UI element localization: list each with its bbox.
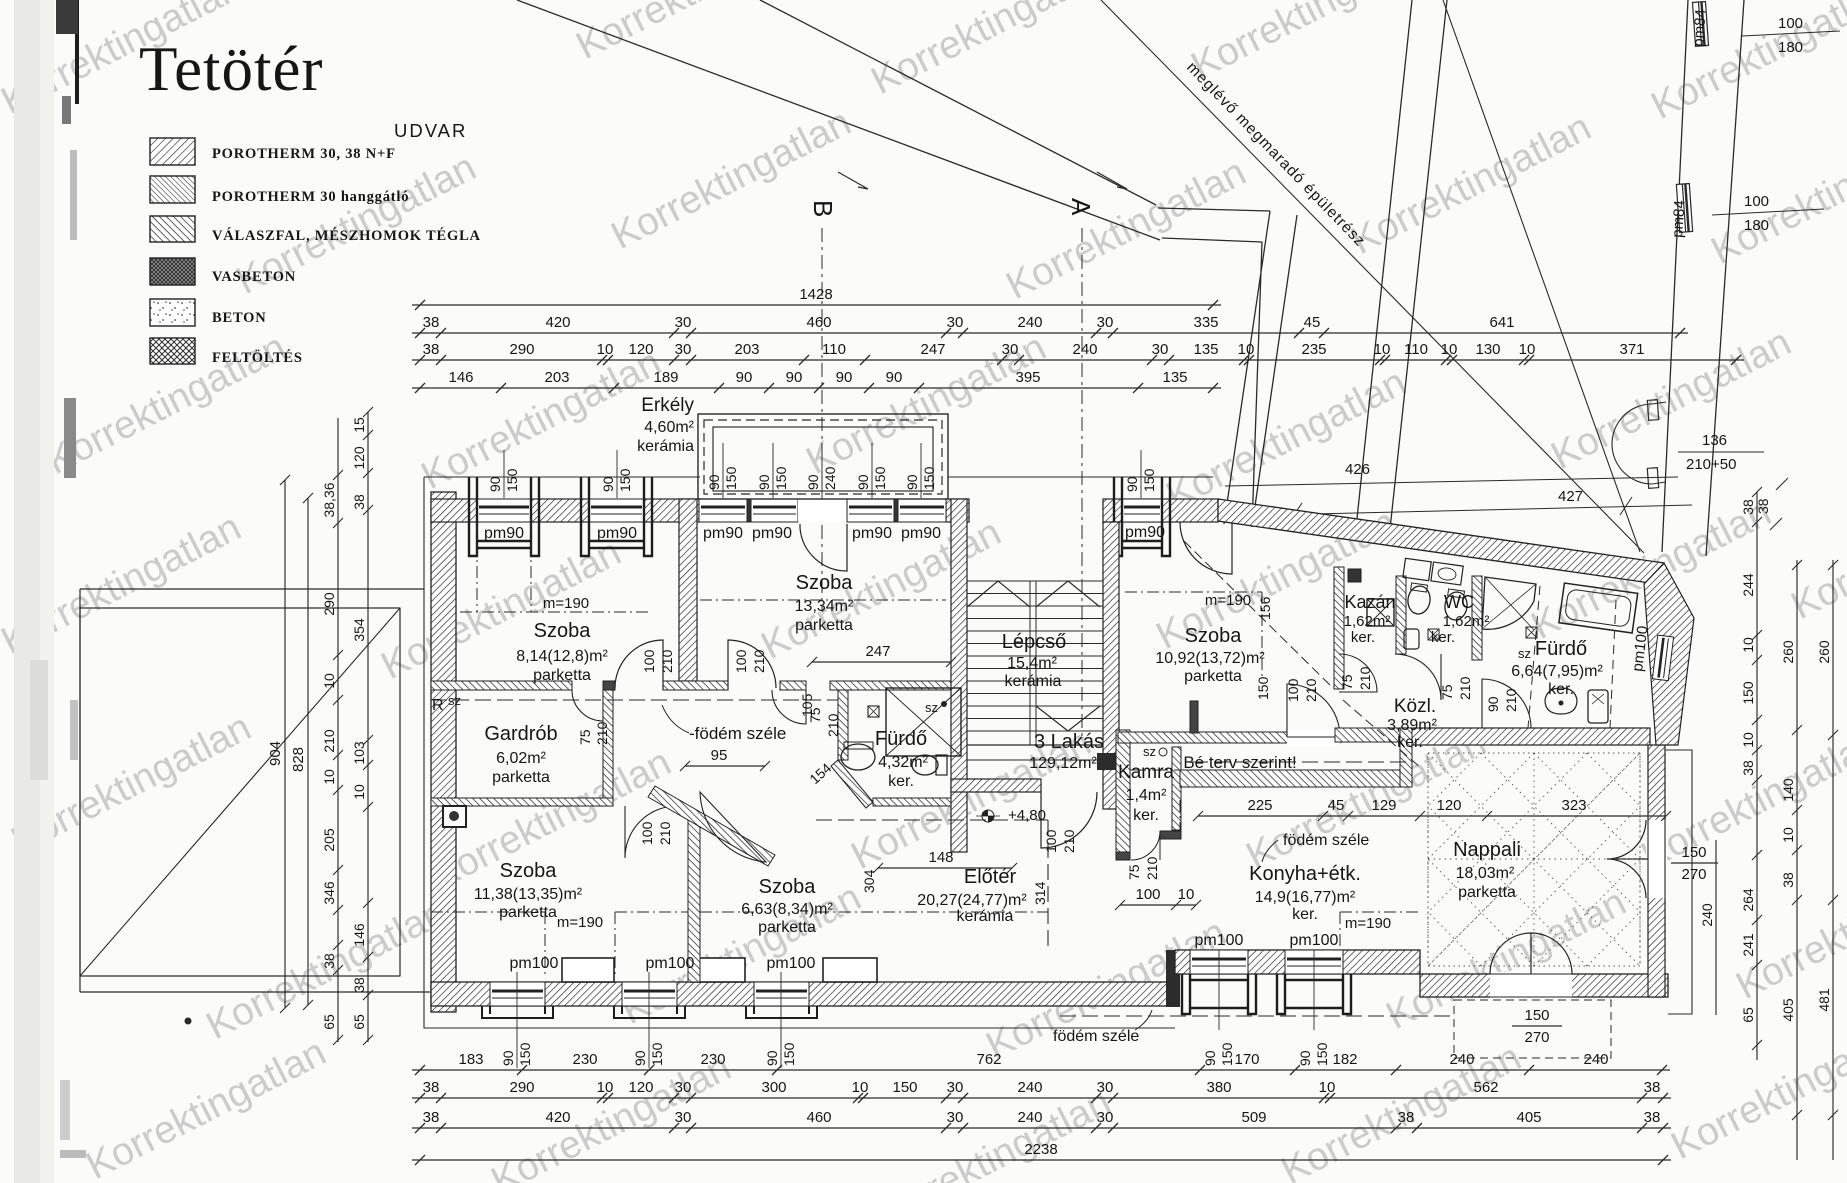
svg-text:kerámia: kerámia xyxy=(957,908,1014,925)
svg-text:pm90: pm90 xyxy=(901,525,941,542)
svg-text:6,63(8,34)m²: 6,63(8,34)m² xyxy=(741,901,833,918)
svg-text:210: 210 xyxy=(659,649,675,673)
svg-text:ker.: ker. xyxy=(1133,807,1159,824)
svg-text:pm90: pm90 xyxy=(597,525,637,542)
svg-text:pm84: pm84 xyxy=(1669,200,1689,239)
svg-text:1,62m²: 1,62m² xyxy=(1443,613,1490,630)
svg-text:pm90: pm90 xyxy=(852,525,892,542)
svg-text:150: 150 xyxy=(872,466,888,490)
svg-text:240: 240 xyxy=(1072,341,1097,358)
svg-text:244: 244 xyxy=(1740,573,1756,597)
svg-text:241: 241 xyxy=(1740,933,1756,957)
svg-text:146: 146 xyxy=(448,369,473,386)
svg-text:135: 135 xyxy=(1193,341,1218,358)
svg-text:38: 38 xyxy=(351,977,367,993)
svg-text:POROTHERM 30 hanggátló: POROTHERM 30 hanggátló xyxy=(212,189,409,205)
svg-text:1428: 1428 xyxy=(799,286,832,303)
svg-text:120: 120 xyxy=(628,1079,653,1096)
svg-text:182: 182 xyxy=(1332,1051,1357,1068)
svg-text:30: 30 xyxy=(1097,1079,1114,1096)
svg-text:FELTÖLTÉS: FELTÖLTÉS xyxy=(212,349,303,366)
svg-text:420: 420 xyxy=(545,314,570,331)
svg-text:100: 100 xyxy=(733,649,749,673)
svg-text:pm90: pm90 xyxy=(1125,524,1165,541)
svg-text:38: 38 xyxy=(423,314,440,331)
svg-text:90: 90 xyxy=(764,1050,780,1066)
svg-text:10: 10 xyxy=(1740,732,1756,748)
svg-text:150: 150 xyxy=(1219,1042,1235,1066)
svg-text:10: 10 xyxy=(597,1079,614,1096)
svg-text:205: 205 xyxy=(321,828,337,852)
svg-text:m=190: m=190 xyxy=(557,914,603,931)
svg-text:426: 426 xyxy=(1345,461,1370,478)
svg-text:VASBETON: VASBETON xyxy=(212,269,296,285)
svg-text:762: 762 xyxy=(976,1051,1001,1068)
svg-text:B: B xyxy=(808,200,838,217)
svg-text:15: 15 xyxy=(351,417,367,433)
svg-text:sz: sz xyxy=(925,700,938,715)
svg-text:30: 30 xyxy=(947,1079,964,1096)
svg-text:203: 203 xyxy=(734,341,759,358)
svg-text:90: 90 xyxy=(1485,696,1501,712)
svg-text:828: 828 xyxy=(290,747,307,772)
svg-text:90: 90 xyxy=(836,369,853,386)
svg-text:100: 100 xyxy=(641,649,657,673)
svg-text:150: 150 xyxy=(773,466,789,490)
svg-text:Erkély: Erkély xyxy=(641,395,694,416)
svg-text:6,64(7,95)m²: 6,64(7,95)m² xyxy=(1511,663,1603,680)
svg-text:13,34m²: 13,34m² xyxy=(795,598,854,615)
svg-text:136: 136 xyxy=(1702,432,1727,449)
svg-text:parketta: parketta xyxy=(1184,668,1242,685)
svg-text:38: 38 xyxy=(1644,1079,1661,1096)
svg-text:427: 427 xyxy=(1558,488,1583,505)
svg-text:30: 30 xyxy=(675,1109,692,1126)
svg-text:18,03m²: 18,03m² xyxy=(1456,865,1515,882)
svg-text:150: 150 xyxy=(1255,676,1271,700)
svg-text:210: 210 xyxy=(1061,829,1077,853)
svg-text:189: 189 xyxy=(653,369,678,386)
svg-text:30: 30 xyxy=(675,314,692,331)
svg-text:BETON: BETON xyxy=(212,310,267,326)
svg-text:203: 203 xyxy=(544,369,569,386)
svg-text:Szoba: Szoba xyxy=(534,620,592,642)
svg-text:210+50: 210+50 xyxy=(1686,456,1736,473)
svg-text:38: 38 xyxy=(1780,872,1796,888)
svg-text:Kamra: Kamra xyxy=(1118,762,1174,783)
svg-text:Gardrób: Gardrób xyxy=(484,723,557,745)
svg-text:335: 335 xyxy=(1193,314,1218,331)
svg-text:38: 38 xyxy=(1398,1109,1415,1126)
svg-text:Konyha+étk.: Konyha+étk. xyxy=(1249,863,1361,885)
svg-text:641: 641 xyxy=(1489,314,1514,331)
svg-text:10,92(13,72)m²: 10,92(13,72)m² xyxy=(1155,650,1265,667)
svg-text:38: 38 xyxy=(1740,499,1756,515)
svg-text:38: 38 xyxy=(321,953,337,969)
svg-text:130: 130 xyxy=(1475,341,1500,358)
svg-text:225: 225 xyxy=(1247,797,1272,814)
svg-text:kerámia: kerámia xyxy=(1005,673,1062,690)
svg-text:260: 260 xyxy=(1780,640,1796,664)
svg-text:38: 38 xyxy=(423,1079,440,1096)
svg-text:210: 210 xyxy=(1144,856,1160,880)
svg-text:65: 65 xyxy=(351,1014,367,1030)
svg-text:pm100: pm100 xyxy=(646,955,695,972)
svg-text:230: 230 xyxy=(700,1051,725,1068)
svg-text:pm100: pm100 xyxy=(767,955,816,972)
svg-text:90: 90 xyxy=(1297,1050,1313,1066)
svg-text:45: 45 xyxy=(1304,314,1321,331)
svg-text:m=190: m=190 xyxy=(1205,592,1251,609)
svg-text:Kazán: Kazán xyxy=(1344,592,1395,612)
svg-text:10: 10 xyxy=(1238,341,1255,358)
svg-text:38,36: 38,36 xyxy=(321,482,337,517)
svg-text:UDVAR: UDVAR xyxy=(394,120,467,141)
svg-text:210: 210 xyxy=(1357,666,1373,690)
svg-text:parketta: parketta xyxy=(758,919,816,936)
svg-text:A: A xyxy=(1066,198,1096,216)
svg-text:183: 183 xyxy=(458,1051,483,1068)
svg-text:sz: sz xyxy=(1518,646,1531,661)
svg-text:POROTHERM 30, 38 N+F: POROTHERM 30, 38 N+F xyxy=(212,146,396,162)
svg-text:30: 30 xyxy=(947,1109,964,1126)
svg-text:110: 110 xyxy=(822,341,846,358)
svg-text:1,62m²: 1,62m² xyxy=(1344,613,1391,630)
svg-text:+4,80: +4,80 xyxy=(1008,807,1046,824)
svg-text:304: 304 xyxy=(861,869,877,893)
svg-text:38: 38 xyxy=(1740,760,1756,776)
svg-text:100: 100 xyxy=(1135,886,1160,903)
svg-text:ker.: ker. xyxy=(1292,906,1318,923)
svg-text:Szoba: Szoba xyxy=(1185,625,1243,647)
svg-text:180: 180 xyxy=(1744,217,1769,234)
svg-text:235: 235 xyxy=(1301,341,1326,358)
svg-text:90: 90 xyxy=(855,474,871,490)
svg-text:150: 150 xyxy=(504,468,520,492)
svg-text:100: 100 xyxy=(1744,193,1769,210)
svg-text:6,02m²: 6,02m² xyxy=(496,750,546,767)
svg-text:ker.: ker. xyxy=(1548,681,1574,698)
svg-text:75: 75 xyxy=(1126,864,1142,880)
svg-text:Szoba: Szoba xyxy=(796,572,854,594)
svg-text:38: 38 xyxy=(423,341,440,358)
svg-text:90: 90 xyxy=(805,474,821,490)
svg-text:156: 156 xyxy=(1257,596,1273,620)
svg-text:10: 10 xyxy=(1519,341,1536,358)
svg-text:90: 90 xyxy=(1124,476,1140,492)
svg-text:3 Lakás: 3 Lakás xyxy=(1034,731,1104,753)
svg-text:240: 240 xyxy=(1583,1051,1608,1068)
svg-text:-födém széle: -födém széle xyxy=(689,724,786,743)
svg-text:ker.: ker. xyxy=(1431,629,1455,646)
svg-text:Nappali: Nappali xyxy=(1453,839,1521,861)
svg-text:8,14(12,8)m²: 8,14(12,8)m² xyxy=(516,648,608,665)
svg-text:460: 460 xyxy=(806,314,831,331)
svg-text:146: 146 xyxy=(351,923,367,947)
svg-text:509: 509 xyxy=(1241,1109,1266,1126)
svg-text:sz: sz xyxy=(1143,744,1156,759)
svg-text:170: 170 xyxy=(1234,1051,1259,1068)
svg-text:10: 10 xyxy=(1780,827,1796,843)
svg-text:135: 135 xyxy=(1162,369,1187,386)
svg-text:150: 150 xyxy=(517,1042,533,1066)
svg-text:65: 65 xyxy=(321,1014,337,1030)
svg-text:300: 300 xyxy=(761,1079,786,1096)
svg-text:30: 30 xyxy=(947,314,964,331)
svg-text:290: 290 xyxy=(321,592,337,616)
svg-text:Bé terv szerint!: Bé terv szerint! xyxy=(1183,753,1296,772)
svg-text:pm84: pm84 xyxy=(1690,9,1710,48)
svg-text:38: 38 xyxy=(423,1109,440,1126)
svg-text:420: 420 xyxy=(545,1109,570,1126)
svg-text:240: 240 xyxy=(1017,314,1042,331)
svg-text:150: 150 xyxy=(1681,844,1706,861)
svg-text:Fürdő: Fürdő xyxy=(1535,638,1587,660)
svg-text:150: 150 xyxy=(723,466,739,490)
svg-text:parketta: parketta xyxy=(492,769,550,786)
svg-text:90: 90 xyxy=(706,474,722,490)
svg-text:395: 395 xyxy=(1015,369,1040,386)
svg-text:parketta: parketta xyxy=(533,667,591,684)
svg-text:270: 270 xyxy=(1681,866,1706,883)
svg-text:371: 371 xyxy=(1619,341,1644,358)
svg-text:314: 314 xyxy=(1032,881,1048,905)
svg-text:240: 240 xyxy=(1699,903,1715,927)
svg-text:ker.: ker. xyxy=(1397,734,1423,751)
svg-text:120: 120 xyxy=(628,341,653,358)
svg-text:90: 90 xyxy=(736,369,753,386)
svg-text:95: 95 xyxy=(711,747,728,764)
svg-text:65: 65 xyxy=(1740,1007,1756,1023)
svg-text:240: 240 xyxy=(1017,1079,1042,1096)
svg-text:30: 30 xyxy=(1097,1109,1114,1126)
svg-text:75: 75 xyxy=(577,729,593,745)
svg-text:38: 38 xyxy=(1644,1109,1661,1126)
svg-text:30: 30 xyxy=(1097,314,1114,331)
svg-text:Fürdő: Fürdő xyxy=(875,728,927,750)
svg-text:1,4m²: 1,4m² xyxy=(1126,787,1168,804)
svg-text:100: 100 xyxy=(639,821,655,845)
svg-text:100: 100 xyxy=(1043,829,1059,853)
svg-text:90: 90 xyxy=(487,476,503,492)
svg-text:30: 30 xyxy=(1152,341,1169,358)
svg-text:10: 10 xyxy=(351,784,367,800)
svg-text:pm90: pm90 xyxy=(484,525,524,542)
svg-text:148: 148 xyxy=(928,849,953,866)
svg-text:120: 120 xyxy=(1436,797,1461,814)
svg-text:100: 100 xyxy=(1778,15,1803,32)
svg-text:129,12m²: 129,12m² xyxy=(1029,755,1097,772)
svg-text:75: 75 xyxy=(1339,674,1355,690)
svg-text:129: 129 xyxy=(1371,797,1396,814)
svg-text:15,4m²: 15,4m² xyxy=(1007,655,1057,672)
svg-text:90: 90 xyxy=(886,369,903,386)
svg-text:100: 100 xyxy=(1285,678,1301,702)
svg-text:30: 30 xyxy=(1002,341,1019,358)
svg-text:405: 405 xyxy=(1780,998,1796,1022)
svg-text:10: 10 xyxy=(1441,341,1458,358)
svg-text:150: 150 xyxy=(892,1079,917,1096)
svg-text:240: 240 xyxy=(1017,1109,1042,1126)
svg-text:30: 30 xyxy=(675,341,692,358)
svg-text:14,9(16,77)m²: 14,9(16,77)m² xyxy=(1255,889,1356,906)
svg-text:140: 140 xyxy=(1780,778,1796,802)
svg-text:Lépcső: Lépcső xyxy=(1002,631,1067,653)
svg-text:30: 30 xyxy=(675,1079,692,1096)
svg-text:405: 405 xyxy=(1516,1109,1541,1126)
svg-text:150: 150 xyxy=(617,468,633,492)
svg-text:260: 260 xyxy=(1816,640,1832,664)
svg-text:R: R xyxy=(432,697,444,714)
svg-text:10: 10 xyxy=(1319,1079,1336,1096)
svg-text:2238: 2238 xyxy=(1024,1141,1057,1158)
svg-text:4,32m²: 4,32m² xyxy=(878,754,928,771)
svg-text:3,89m²: 3,89m² xyxy=(1387,717,1437,734)
svg-text:210: 210 xyxy=(1503,688,1519,712)
svg-text:150: 150 xyxy=(1740,681,1756,705)
svg-text:247: 247 xyxy=(920,341,945,358)
svg-text:38: 38 xyxy=(351,494,367,510)
svg-text:10: 10 xyxy=(321,673,337,689)
svg-text:pm100: pm100 xyxy=(510,955,559,972)
svg-text:kerámia: kerámia xyxy=(637,438,694,455)
svg-text:210: 210 xyxy=(825,713,841,737)
svg-text:240: 240 xyxy=(822,466,838,490)
svg-text:290: 290 xyxy=(509,341,534,358)
svg-text:10: 10 xyxy=(852,1079,869,1096)
svg-text:346: 346 xyxy=(321,881,337,905)
svg-text:pm100: pm100 xyxy=(1290,932,1339,949)
svg-text:380: 380 xyxy=(1206,1079,1231,1096)
svg-text:270: 270 xyxy=(1524,1029,1549,1046)
svg-text:290: 290 xyxy=(509,1079,534,1096)
svg-text:120: 120 xyxy=(351,446,367,470)
svg-text:90: 90 xyxy=(632,1050,648,1066)
svg-text:Előtér: Előtér xyxy=(964,866,1017,888)
svg-text:210: 210 xyxy=(1303,678,1319,702)
svg-text:150: 150 xyxy=(649,1042,665,1066)
svg-text:10: 10 xyxy=(1740,637,1756,653)
svg-text:105: 105 xyxy=(799,693,815,717)
svg-text:45: 45 xyxy=(1328,797,1345,814)
svg-text:210: 210 xyxy=(751,649,767,673)
svg-text:pm90: pm90 xyxy=(752,525,792,542)
svg-text:210: 210 xyxy=(594,721,610,745)
svg-text:födém széle: födém széle xyxy=(1283,832,1369,849)
svg-text:m=190: m=190 xyxy=(543,595,589,612)
svg-text:150: 150 xyxy=(1141,468,1157,492)
svg-text:150: 150 xyxy=(1314,1042,1330,1066)
svg-text:150: 150 xyxy=(781,1042,797,1066)
svg-text:90: 90 xyxy=(786,369,803,386)
svg-text:parketta: parketta xyxy=(499,904,557,921)
svg-text:110: 110 xyxy=(1404,341,1428,358)
svg-text:4,60m²: 4,60m² xyxy=(644,419,694,436)
svg-text:230: 230 xyxy=(572,1051,597,1068)
svg-text:210: 210 xyxy=(1457,676,1473,700)
svg-text:904: 904 xyxy=(267,741,284,766)
svg-text:pm90: pm90 xyxy=(703,525,743,542)
svg-text:ker.: ker. xyxy=(1351,629,1375,646)
svg-text:10: 10 xyxy=(597,341,614,358)
svg-text:264: 264 xyxy=(1740,888,1756,912)
svg-text:11,38(13,35)m²: 11,38(13,35)m² xyxy=(474,886,583,903)
svg-text:10: 10 xyxy=(1178,886,1195,903)
svg-text:240: 240 xyxy=(1449,1051,1474,1068)
svg-text:90: 90 xyxy=(904,474,920,490)
svg-text:Szoba: Szoba xyxy=(759,876,817,898)
svg-text:460: 460 xyxy=(806,1109,831,1126)
svg-text:parketta: parketta xyxy=(795,617,853,634)
svg-text:150: 150 xyxy=(921,466,937,490)
svg-text:Tetötér: Tetötér xyxy=(139,34,324,104)
svg-text:parketta: parketta xyxy=(1458,884,1516,901)
svg-text:födém széle: födém széle xyxy=(1053,1028,1139,1045)
svg-text:WC: WC xyxy=(1444,592,1474,612)
svg-text:75: 75 xyxy=(1439,684,1455,700)
svg-text:323: 323 xyxy=(1561,797,1586,814)
svg-text:20,27(24,77)m²: 20,27(24,77)m² xyxy=(917,892,1027,909)
svg-text:210: 210 xyxy=(321,729,337,753)
svg-text:103: 103 xyxy=(351,741,367,765)
svg-text:m=190: m=190 xyxy=(1345,915,1391,932)
svg-text:VÁLASZFAL, MÉSZHOMOK TÉGLA: VÁLASZFAL, MÉSZHOMOK TÉGLA xyxy=(212,227,481,244)
svg-text:90: 90 xyxy=(756,474,772,490)
svg-text:90: 90 xyxy=(500,1050,516,1066)
svg-text:210: 210 xyxy=(657,821,673,845)
svg-text:pm100: pm100 xyxy=(1195,932,1244,949)
svg-text:562: 562 xyxy=(1473,1079,1498,1096)
svg-text:150: 150 xyxy=(1524,1007,1549,1024)
svg-text:247: 247 xyxy=(865,643,890,660)
svg-text:481: 481 xyxy=(1816,988,1832,1012)
svg-text:90: 90 xyxy=(600,476,616,492)
svg-text:90: 90 xyxy=(1202,1050,1218,1066)
svg-text:Szoba: Szoba xyxy=(500,860,558,882)
svg-text:Közl.: Közl. xyxy=(1394,696,1436,717)
svg-text:10: 10 xyxy=(1374,341,1391,358)
svg-text:10: 10 xyxy=(321,769,337,785)
svg-text:354: 354 xyxy=(351,618,367,642)
svg-text:sz: sz xyxy=(448,693,461,708)
svg-text:180: 180 xyxy=(1778,39,1803,56)
svg-text:ker.: ker. xyxy=(888,773,914,790)
